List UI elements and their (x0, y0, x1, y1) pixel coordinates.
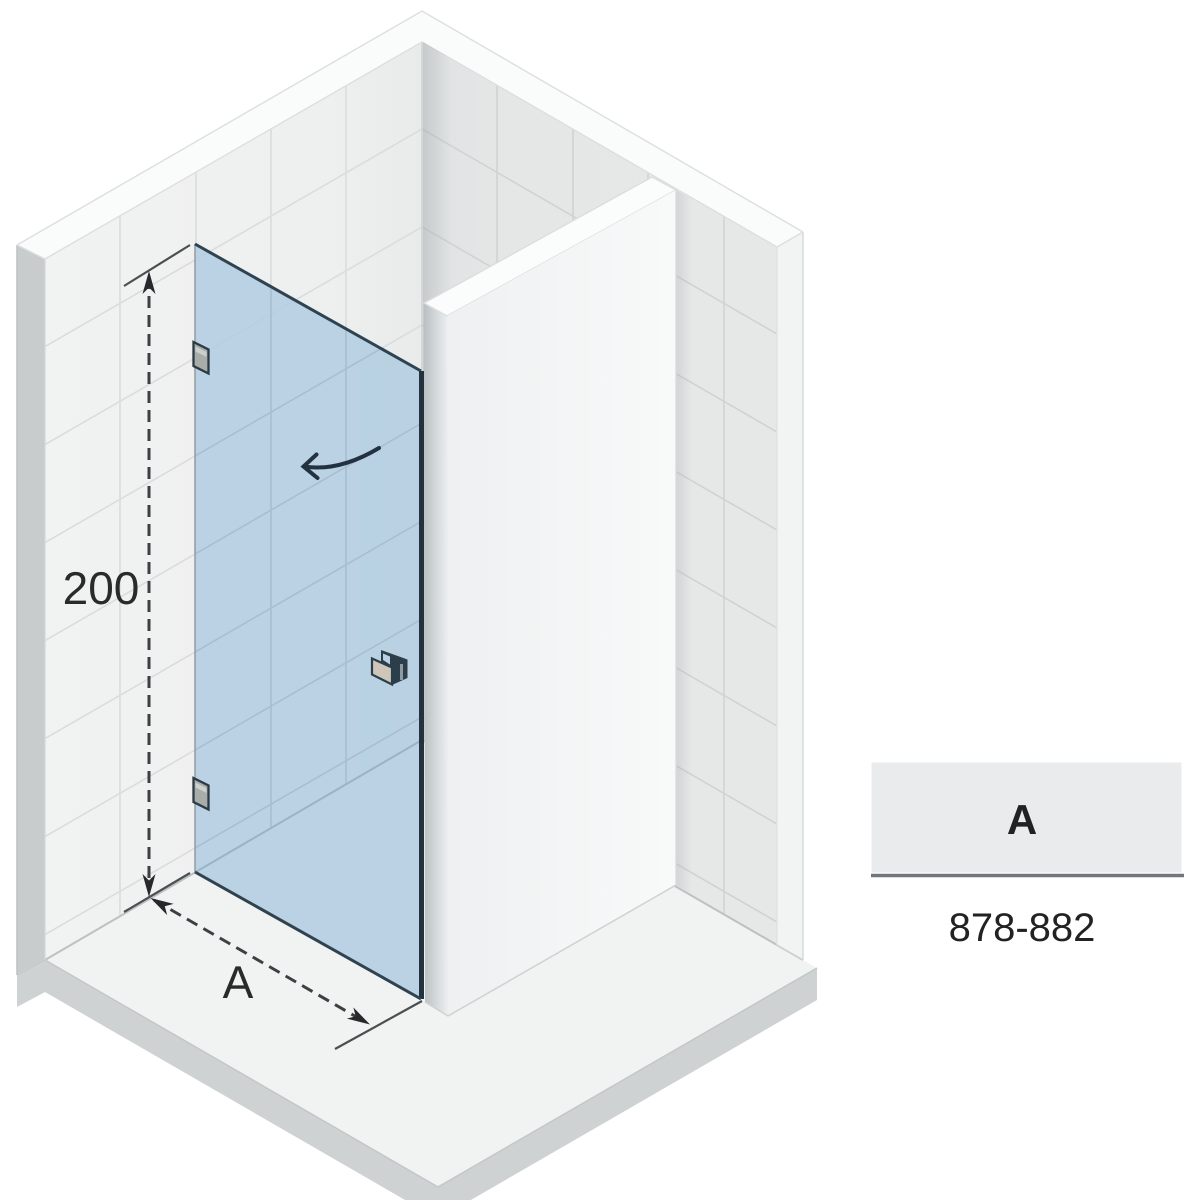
svg-text:200: 200 (63, 562, 140, 614)
svg-text:A: A (223, 956, 254, 1008)
svg-text:878-882: 878-882 (949, 906, 1096, 950)
svg-text:A: A (1007, 796, 1037, 843)
